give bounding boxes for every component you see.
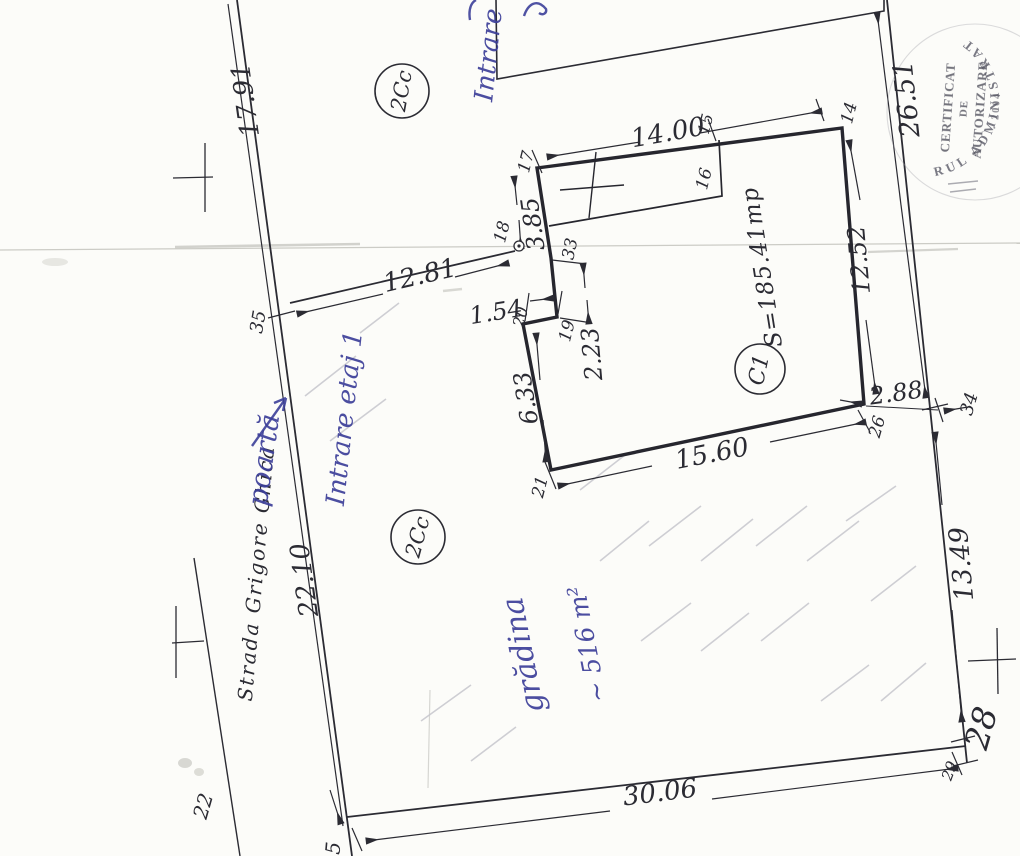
neighbor-boundary (496, 0, 884, 79)
dim-right-upper: 26.51 (890, 59, 925, 139)
dim-notch-height: 2.23 (578, 326, 607, 381)
point-17: 17 (516, 149, 538, 174)
cadastral-plan-scan: RUL ADMINISTRAT 17.91 22.10 Strada Grigo… (0, 0, 1020, 856)
point-35: 35 (248, 309, 270, 335)
dim-gap-right: 2.88 (868, 377, 924, 408)
flourish-stroke (469, 0, 476, 20)
point-5: 5 (322, 841, 343, 855)
point-33: 33 (560, 237, 581, 262)
point-14: 14 (839, 100, 861, 125)
dim-building-right: 12.52 (844, 225, 874, 296)
point-20: 20 (511, 305, 531, 329)
pencil-hatching (305, 303, 926, 761)
stamp-text-block: CERTIFICAT DE AUTORIZARE · 2004 (936, 52, 1006, 166)
point-16: 16 (694, 166, 716, 191)
point-21: 21 (530, 474, 552, 499)
point-tick (268, 311, 295, 318)
point-18: 18 (492, 219, 514, 244)
parcel-boundary (194, 0, 967, 856)
dim-wall-upper: 3.85 (517, 196, 548, 252)
partial-word-stroke (524, 3, 546, 16)
point-22: 22 (190, 791, 216, 821)
point-28: 28 (959, 703, 1002, 752)
dim-right-lower: 13.49 (946, 526, 978, 602)
point-15: 15 (696, 112, 716, 136)
